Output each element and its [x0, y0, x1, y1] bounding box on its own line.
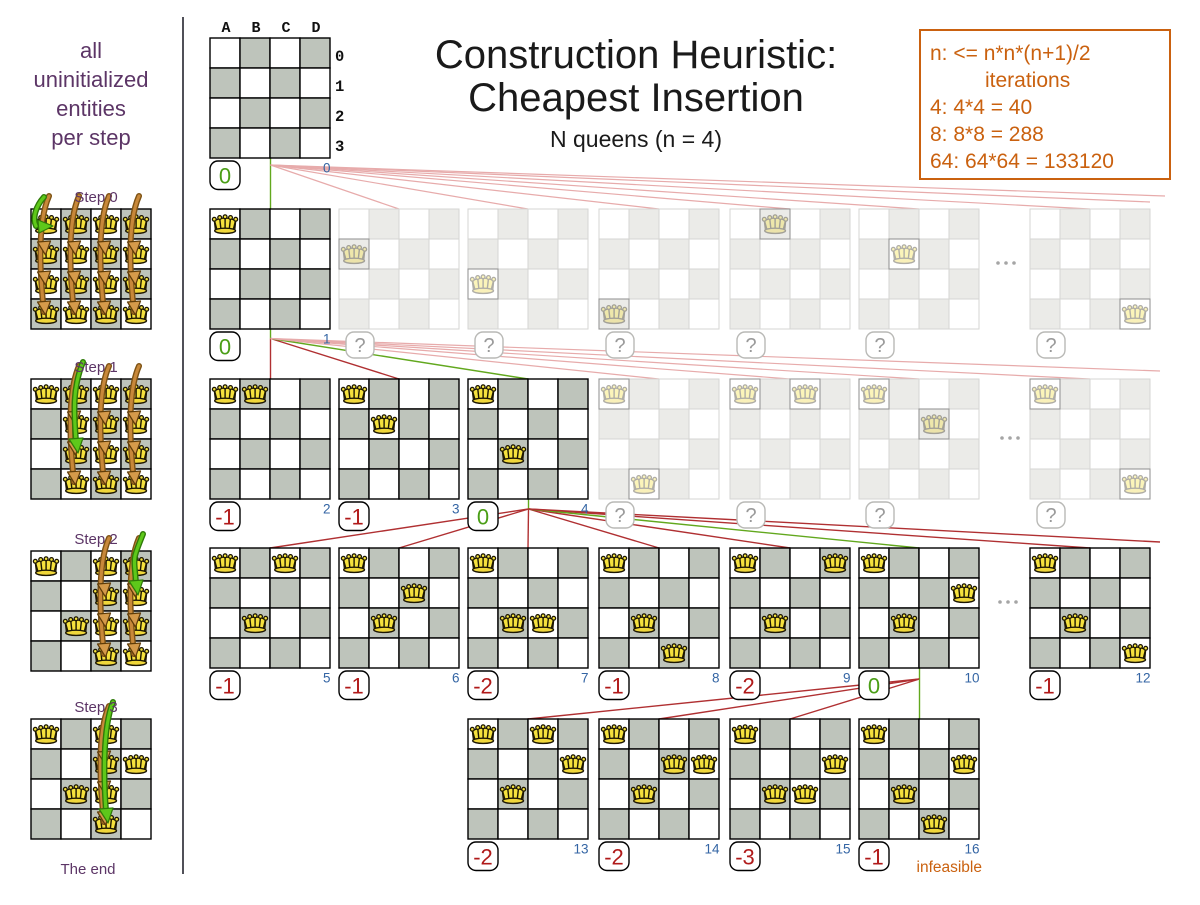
svg-text:?: ? [614, 505, 625, 527]
svg-text:1: 1 [323, 332, 331, 347]
svg-text:2: 2 [335, 108, 344, 126]
svg-text:10: 10 [964, 671, 979, 686]
svg-text:-1: -1 [604, 674, 624, 699]
svg-text:Step 2: Step 2 [74, 531, 117, 548]
svg-text:64: 64*64 = 133120: 64: 64*64 = 133120 [930, 150, 1114, 173]
svg-text:-1: -1 [344, 674, 364, 699]
svg-text:0: 0 [477, 505, 489, 530]
svg-text:Cheapest Insertion: Cheapest Insertion [468, 76, 804, 120]
svg-text:entities: entities [56, 96, 126, 121]
svg-text:N queens (n = 4): N queens (n = 4) [550, 126, 722, 152]
svg-text:Step 3: Step 3 [74, 699, 117, 716]
svg-text:6: 6 [452, 671, 460, 686]
svg-text:-1: -1 [215, 505, 235, 530]
svg-text:0: 0 [219, 164, 231, 189]
svg-text:uninitialized: uninitialized [34, 67, 149, 92]
svg-text:-1: -1 [1035, 674, 1055, 699]
svg-text:12: 12 [1135, 671, 1150, 686]
svg-text:4: 4*4 = 40: 4: 4*4 = 40 [930, 96, 1032, 119]
svg-text:?: ? [874, 505, 885, 527]
svg-text:?: ? [874, 335, 885, 357]
svg-text:Step 1: Step 1 [74, 359, 117, 376]
svg-text:14: 14 [704, 842, 720, 857]
svg-text:15: 15 [835, 842, 850, 857]
svg-text:3: 3 [452, 502, 460, 517]
svg-text:-2: -2 [604, 845, 624, 870]
svg-text:7: 7 [581, 671, 589, 686]
svg-text:-1: -1 [864, 845, 884, 870]
svg-text:16: 16 [964, 842, 979, 857]
svg-text:infeasible: infeasible [917, 859, 983, 876]
svg-text:The end: The end [60, 861, 115, 878]
svg-text:?: ? [354, 335, 365, 357]
svg-text:8: 8*8 = 288: 8: 8*8 = 288 [930, 123, 1044, 146]
svg-text:-2: -2 [473, 845, 493, 870]
svg-text:1: 1 [335, 78, 344, 96]
svg-text:B: B [251, 20, 260, 37]
svg-text:-1: -1 [215, 674, 235, 699]
svg-text:?: ? [745, 505, 756, 527]
svg-text:C: C [281, 20, 290, 37]
svg-text:0: 0 [323, 161, 331, 176]
svg-text:?: ? [483, 335, 494, 357]
svg-text:-2: -2 [473, 674, 493, 699]
svg-text:A: A [221, 20, 230, 37]
svg-text:?: ? [1045, 335, 1056, 357]
svg-text:8: 8 [712, 671, 720, 686]
svg-text:5: 5 [323, 671, 331, 686]
svg-text:per step: per step [51, 125, 131, 150]
svg-text:?: ? [614, 335, 625, 357]
svg-text:0: 0 [335, 48, 344, 66]
svg-text:3: 3 [335, 138, 344, 156]
svg-text:D: D [311, 20, 320, 37]
svg-text:?: ? [745, 335, 756, 357]
svg-text:-3: -3 [735, 845, 755, 870]
svg-text:iterations: iterations [985, 69, 1070, 92]
svg-text:n: <= n*n*(n+1)/2: n: <= n*n*(n+1)/2 [930, 42, 1091, 65]
svg-text:0: 0 [868, 674, 880, 699]
svg-text:-1: -1 [344, 505, 364, 530]
svg-text:4: 4 [581, 502, 589, 517]
svg-text:-2: -2 [735, 674, 755, 699]
svg-text:Construction Heuristic:: Construction Heuristic: [435, 33, 837, 77]
svg-text:2: 2 [323, 502, 331, 517]
svg-text:13: 13 [573, 842, 588, 857]
svg-text:0: 0 [219, 335, 231, 360]
svg-text:?: ? [1045, 505, 1056, 527]
svg-text:Step 0: Step 0 [74, 189, 117, 206]
svg-text:9: 9 [843, 671, 851, 686]
svg-text:all: all [80, 38, 102, 63]
